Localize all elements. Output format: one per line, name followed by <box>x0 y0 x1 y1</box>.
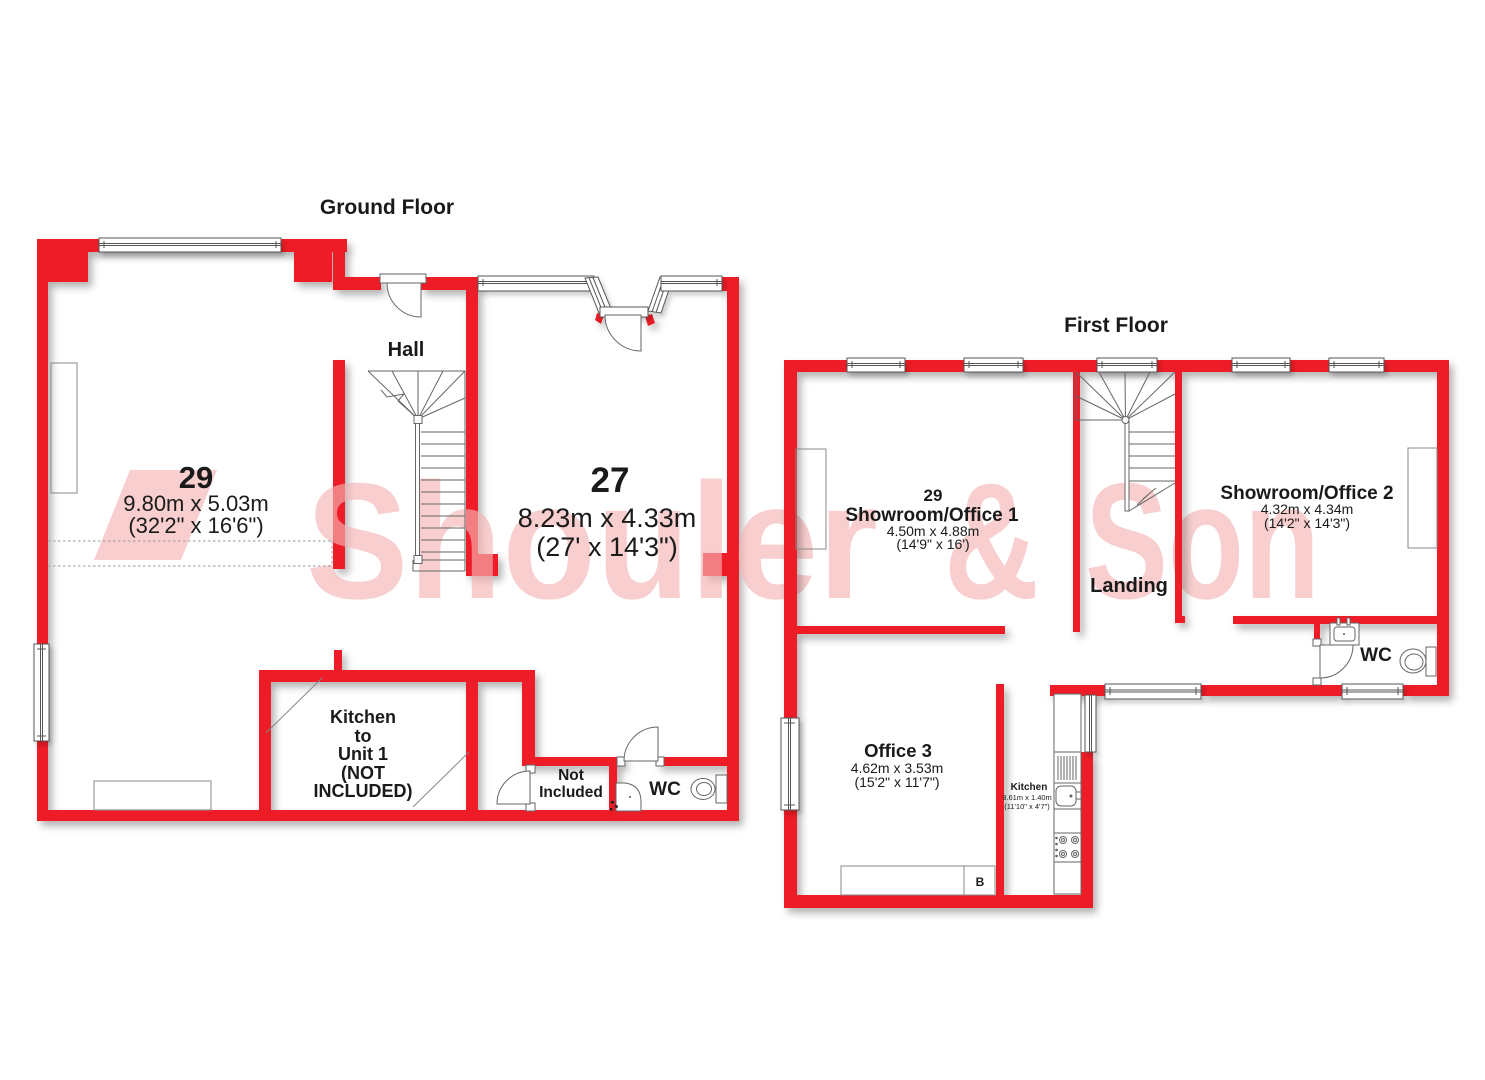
svg-text:(NOT: (NOT <box>341 763 385 783</box>
svg-text:First Floor: First Floor <box>1064 314 1168 337</box>
svg-text:Son: Son <box>1085 449 1320 633</box>
svg-text:Kitchen: Kitchen <box>330 707 396 727</box>
svg-text:(32'2" x 16'6"): (32'2" x 16'6") <box>128 513 263 538</box>
svg-text:27: 27 <box>591 461 630 500</box>
svg-text:INCLUDED): INCLUDED) <box>314 781 413 801</box>
svg-text:(14'2" x 14'3"): (14'2" x 14'3") <box>1264 515 1350 531</box>
svg-text:Kitchen: Kitchen <box>1011 782 1048 793</box>
svg-text:(15'2" x 11'7"): (15'2" x 11'7") <box>854 774 939 790</box>
svg-text:WC: WC <box>1360 645 1392 666</box>
svg-text:Ground Floor: Ground Floor <box>320 196 454 219</box>
svg-text:(14'9" x 16'): (14'9" x 16') <box>896 536 969 552</box>
svg-text:Office 3: Office 3 <box>864 740 932 761</box>
svg-text:(27' x 14'3"): (27' x 14'3") <box>536 532 677 562</box>
svg-text:to: to <box>355 726 372 746</box>
svg-text:29: 29 <box>179 460 213 495</box>
svg-text:Unit 1: Unit 1 <box>338 744 388 764</box>
svg-text:8.23m x 4.33m: 8.23m x 4.33m <box>518 503 697 533</box>
svg-text:(11'10" x 4'7"): (11'10" x 4'7") <box>1004 802 1050 811</box>
svg-text:B: B <box>976 875 985 889</box>
svg-text:Included: Included <box>539 784 603 801</box>
svg-text:Not: Not <box>558 767 584 784</box>
svg-text:Hall: Hall <box>388 339 425 361</box>
svg-text:WC: WC <box>649 779 681 800</box>
svg-text:Landing: Landing <box>1090 575 1168 597</box>
svg-text:29: 29 <box>924 486 943 505</box>
svg-text:3.61m x 1.40m: 3.61m x 1.40m <box>1002 793 1052 802</box>
